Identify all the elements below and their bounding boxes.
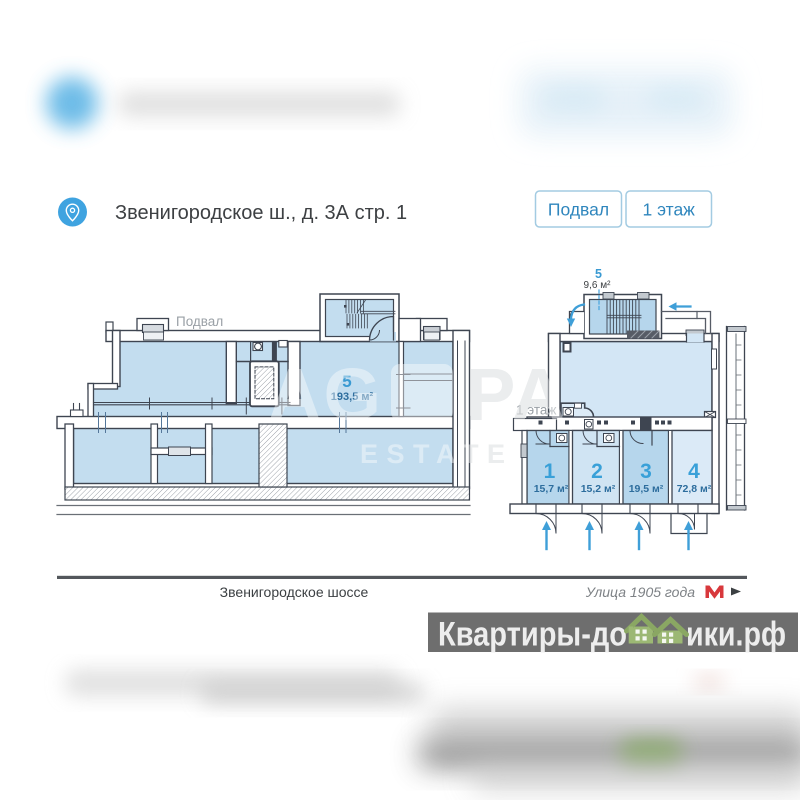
- svg-text:19,5 м²: 19,5 м²: [629, 483, 664, 495]
- svg-text:Квартиры-до: Квартиры-до: [438, 616, 627, 654]
- svg-text:1 этаж: 1 этаж: [642, 200, 695, 220]
- svg-text:15,7 м²: 15,7 м²: [534, 483, 569, 495]
- svg-text:Звенигородское шоссе: Звенигородское шоссе: [220, 584, 369, 600]
- svg-text:РА: РА: [466, 353, 568, 436]
- svg-text:4: 4: [688, 460, 700, 483]
- svg-text:3: 3: [640, 460, 652, 483]
- svg-text:Подвал: Подвал: [176, 314, 223, 329]
- svg-text:9,6 м²: 9,6 м²: [584, 280, 612, 291]
- svg-text:15,2 м²: 15,2 м²: [581, 483, 616, 495]
- svg-text:ики.рф: ики.рф: [686, 616, 786, 654]
- svg-text:Улица 1905 года: Улица 1905 года: [585, 584, 695, 600]
- svg-text:5: 5: [595, 267, 602, 281]
- svg-text:Подвал: Подвал: [548, 200, 609, 220]
- svg-text:1: 1: [544, 460, 556, 483]
- svg-text:ESTATE: ESTATE: [360, 439, 514, 469]
- svg-text:AG: AG: [268, 353, 383, 436]
- svg-text:2: 2: [591, 460, 603, 483]
- svg-text:Звенигородское ш., д. 3А стр.: Звенигородское ш., д. 3А стр. 1: [115, 202, 407, 224]
- svg-text:72,8 м²: 72,8 м²: [677, 483, 712, 495]
